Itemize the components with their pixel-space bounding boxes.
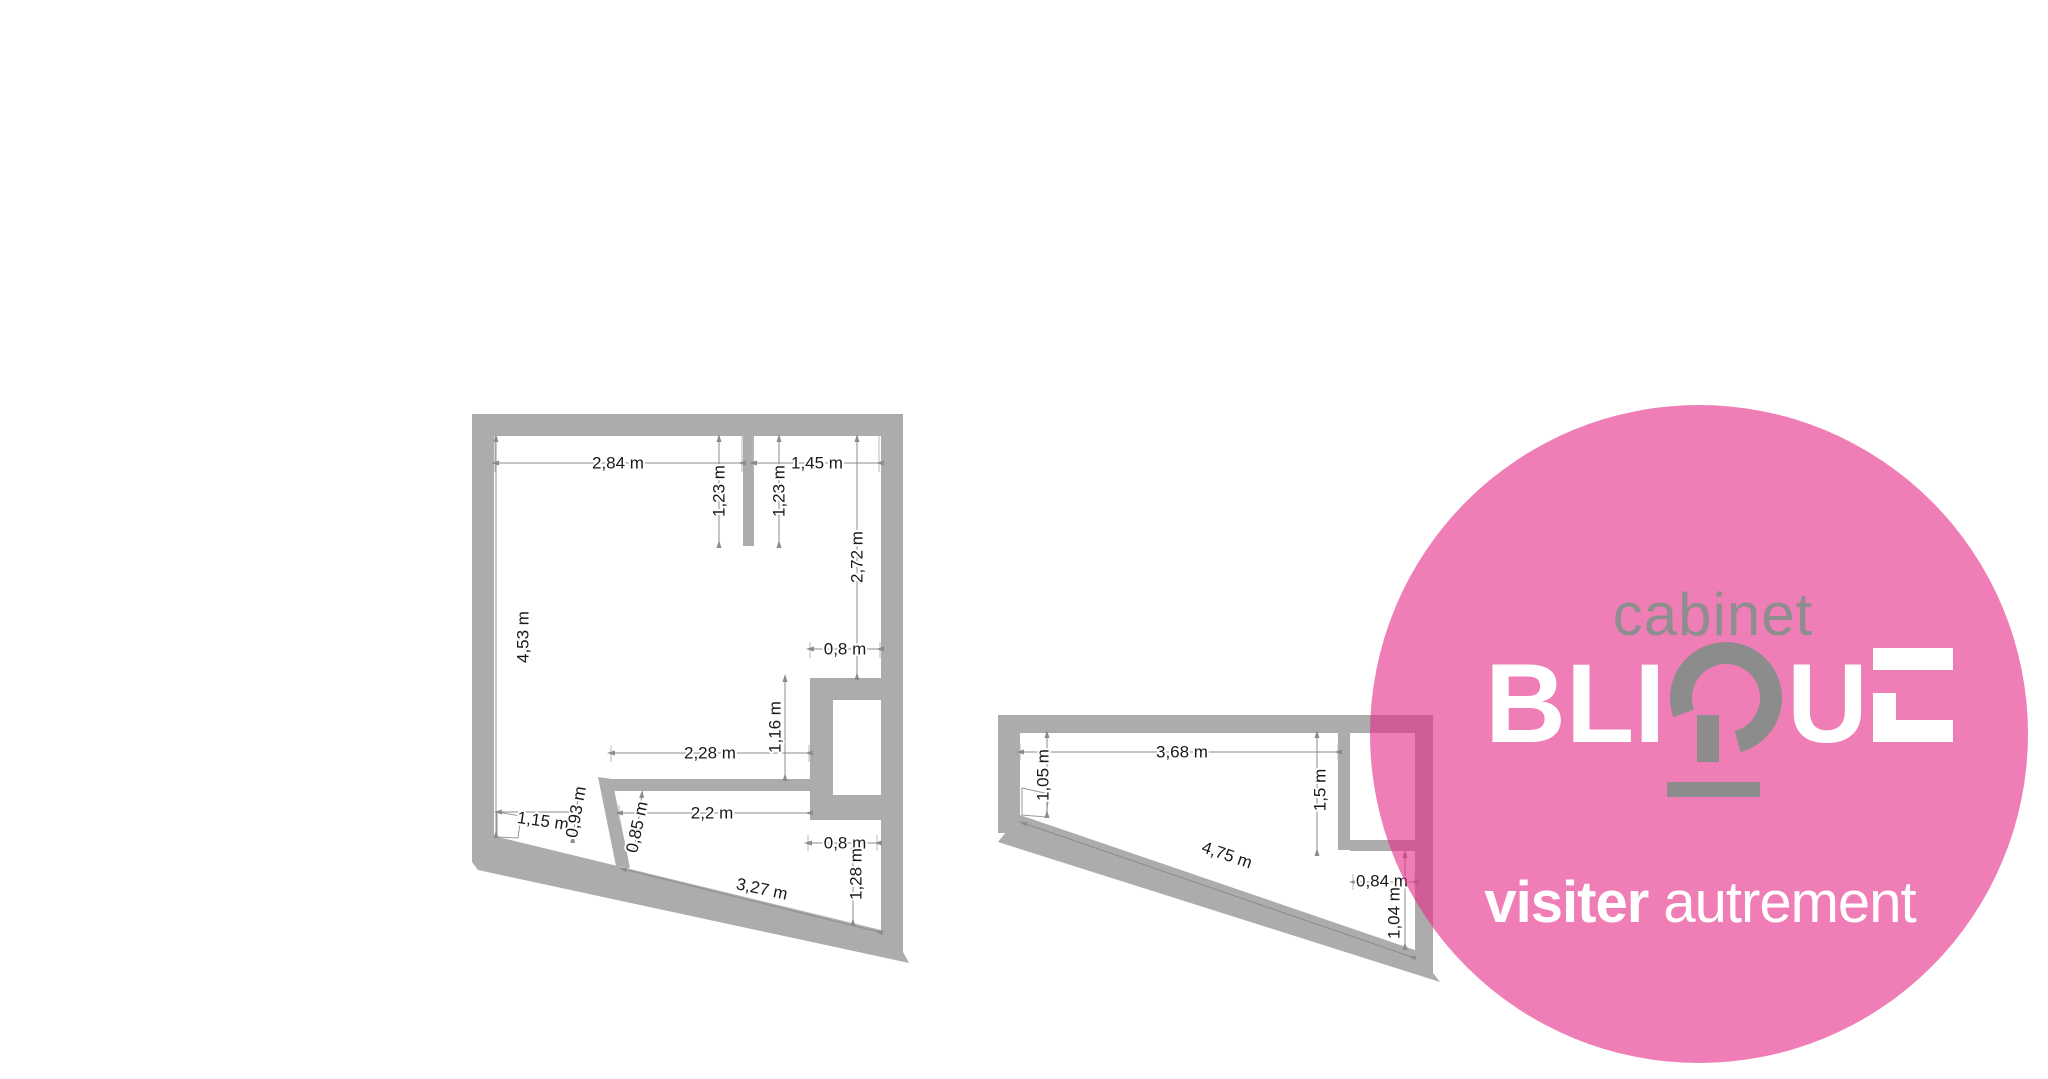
- dimension-label: 1,5 m: [1311, 769, 1330, 812]
- dimension-label: 3,68 m: [1156, 743, 1208, 762]
- dimension-labels: 2,84 m1,23 m1,23 m1,45 m2,72 m4,53 m0,8 …: [514, 454, 1408, 939]
- dimension-label: 1,16 m: [766, 701, 785, 753]
- logo-tagline: visiter autrement: [1484, 870, 1916, 935]
- logo-brand-pre: BLI: [1485, 641, 1665, 766]
- logo-kicker-text: cabinet: [1613, 581, 1813, 648]
- logo-tagline-light: autrement: [1663, 870, 1916, 935]
- dimension-label: 2,72 m: [848, 531, 867, 583]
- logo-tagline-bold: visiter: [1484, 870, 1663, 935]
- shaft-opening: [833, 700, 881, 795]
- dimension-label: 2,84 m: [592, 454, 644, 473]
- stylized-q-icon: [1681, 653, 1771, 762]
- dimension-label: 1,05 m: [1034, 749, 1053, 801]
- dimension-label: 0,85 m: [622, 800, 651, 855]
- floor-plan-left-walls: [472, 414, 909, 963]
- dimension-label: 0,93 m: [562, 785, 590, 839]
- dimension-label: 0,8 m: [824, 640, 867, 659]
- dimension-label: 1,23 m: [770, 465, 789, 517]
- logo-brand-post: U: [1787, 641, 1868, 766]
- dimension-label: 4,75 m: [1199, 838, 1254, 873]
- dimension-label: 4,53 m: [514, 611, 533, 663]
- dimension-label: 1,23 m: [710, 465, 729, 517]
- brand-badge: cabinet BLI U visiter autrement: [1370, 405, 2028, 1063]
- page: 2,84 m1,23 m1,23 m1,45 m2,72 m4,53 m0,8 …: [0, 0, 2048, 1079]
- dimension-label: 1,28 m: [847, 848, 866, 900]
- logo-underline-bar: [1667, 782, 1760, 797]
- brand-logo: cabinet BLI U visiter autrement: [1370, 405, 2028, 1063]
- dimension-label: 2,2 m: [691, 804, 734, 823]
- stylized-e-icon: [1873, 648, 1953, 742]
- dimension-label: 2,28 m: [684, 744, 736, 763]
- dimension-label: 1,45 m: [791, 454, 843, 473]
